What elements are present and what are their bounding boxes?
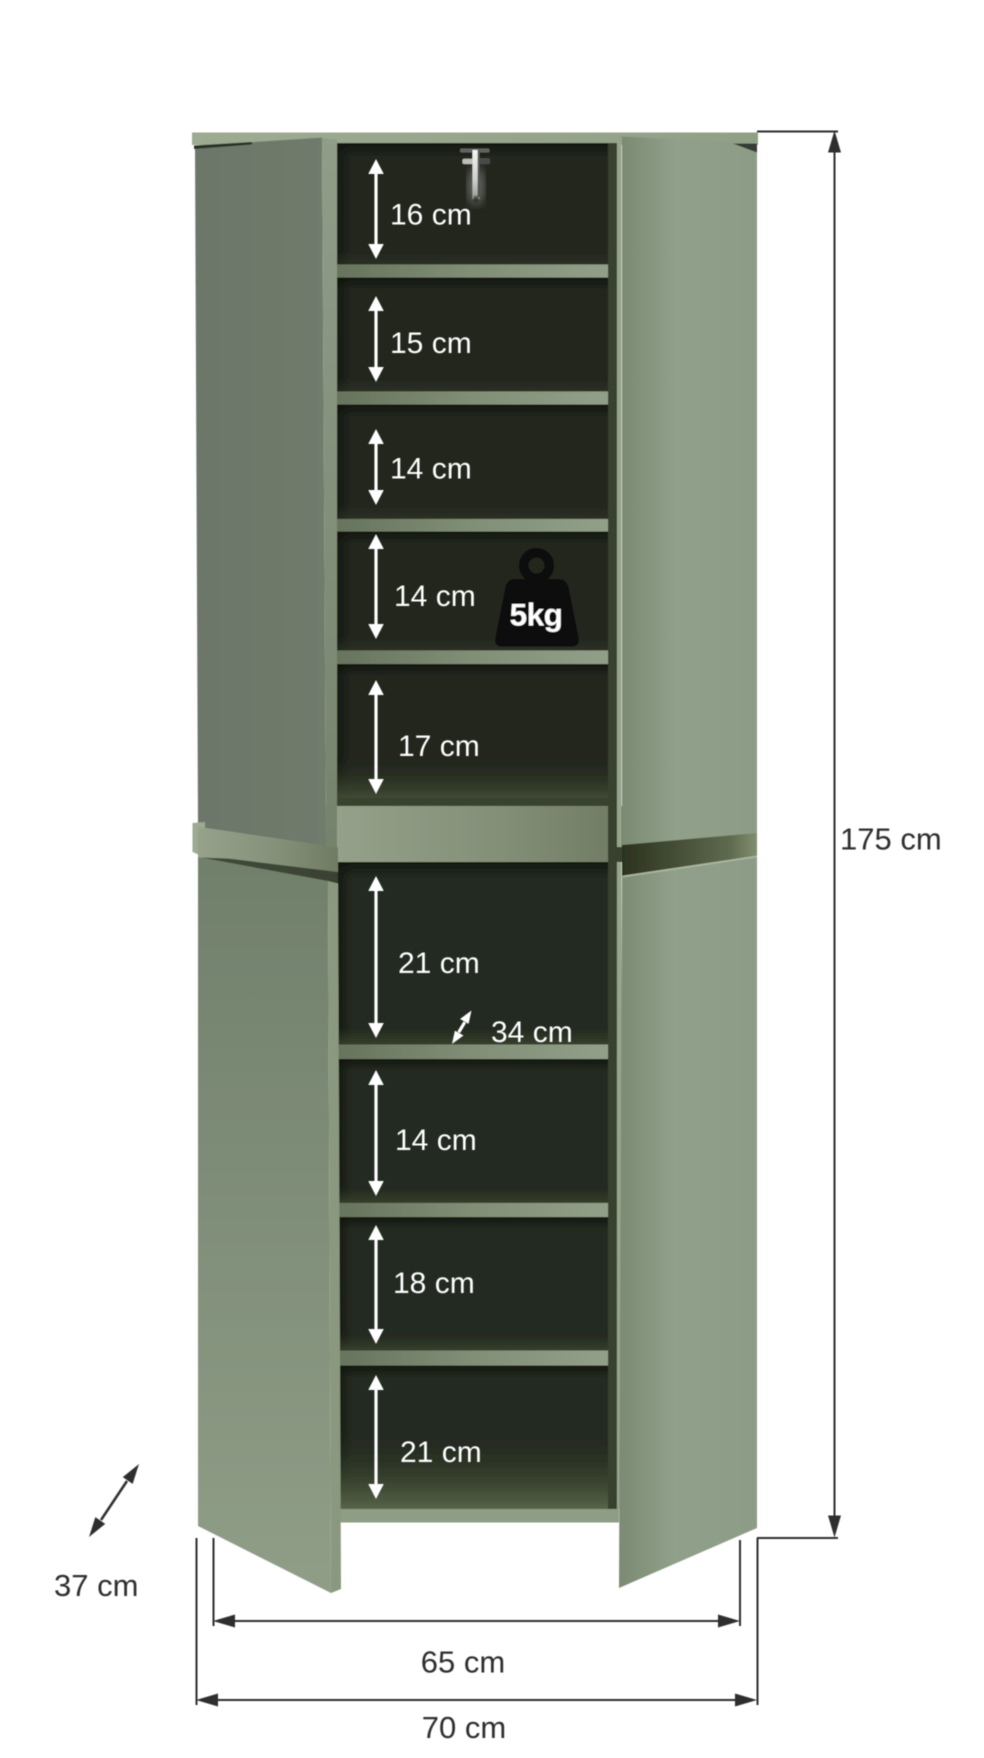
svg-text:34 cm: 34 cm — [491, 1016, 573, 1049]
svg-text:175 cm: 175 cm — [840, 822, 942, 857]
svg-text:70 cm: 70 cm — [422, 1710, 506, 1745]
svg-text:18 cm: 18 cm — [393, 1267, 475, 1300]
svg-text:14 cm: 14 cm — [390, 453, 472, 486]
svg-text:21 cm: 21 cm — [398, 947, 480, 980]
svg-text:15 cm: 15 cm — [390, 327, 472, 360]
svg-text:14 cm: 14 cm — [394, 580, 476, 613]
svg-text:17 cm: 17 cm — [398, 730, 480, 763]
svg-text:14 cm: 14 cm — [395, 1124, 477, 1157]
svg-text:16 cm: 16 cm — [390, 199, 472, 232]
svg-text:5kg: 5kg — [510, 597, 563, 633]
svg-text:21 cm: 21 cm — [400, 1436, 482, 1469]
svg-text:37 cm: 37 cm — [54, 1568, 138, 1603]
svg-text:65 cm: 65 cm — [421, 1645, 505, 1680]
